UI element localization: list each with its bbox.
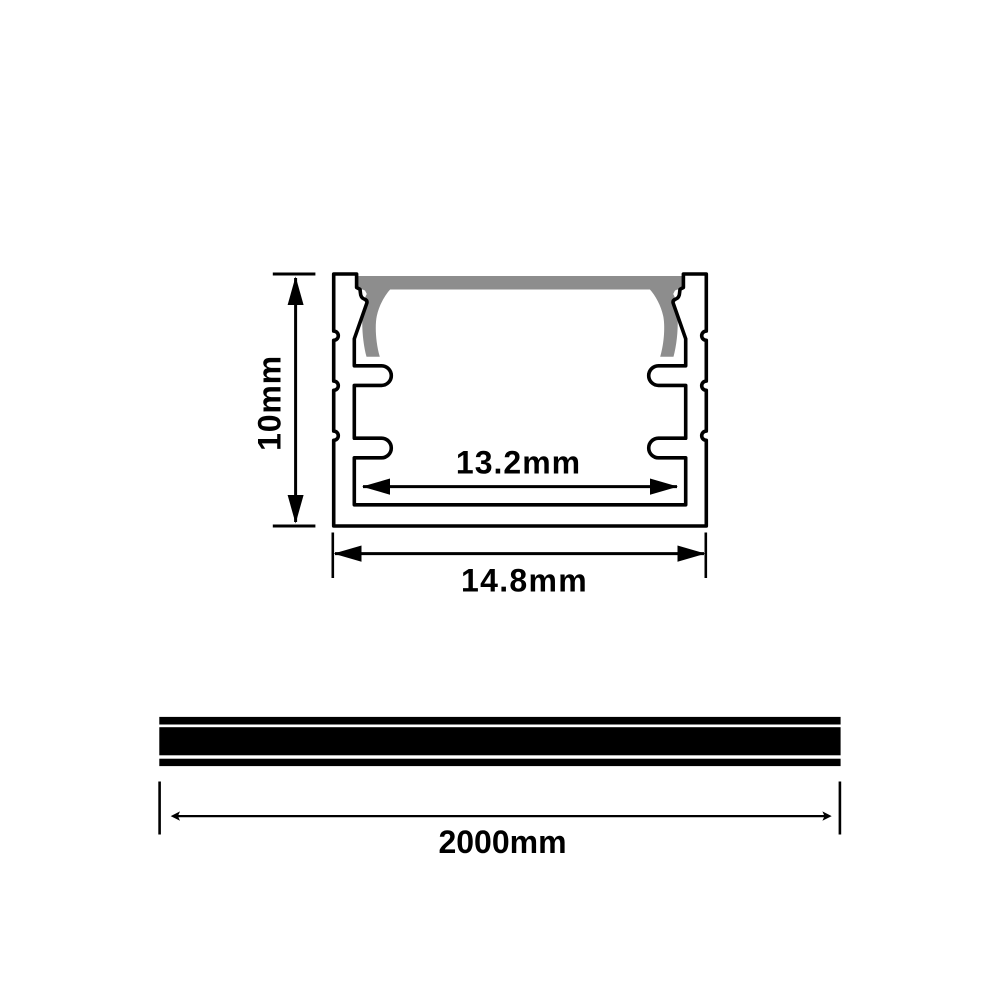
svg-text:2000mm: 2000mm xyxy=(438,824,566,860)
svg-text:14.8mm: 14.8mm xyxy=(461,562,588,598)
svg-text:13.2mm: 13.2mm xyxy=(456,445,581,481)
svg-text:10mm: 10mm xyxy=(252,355,288,451)
